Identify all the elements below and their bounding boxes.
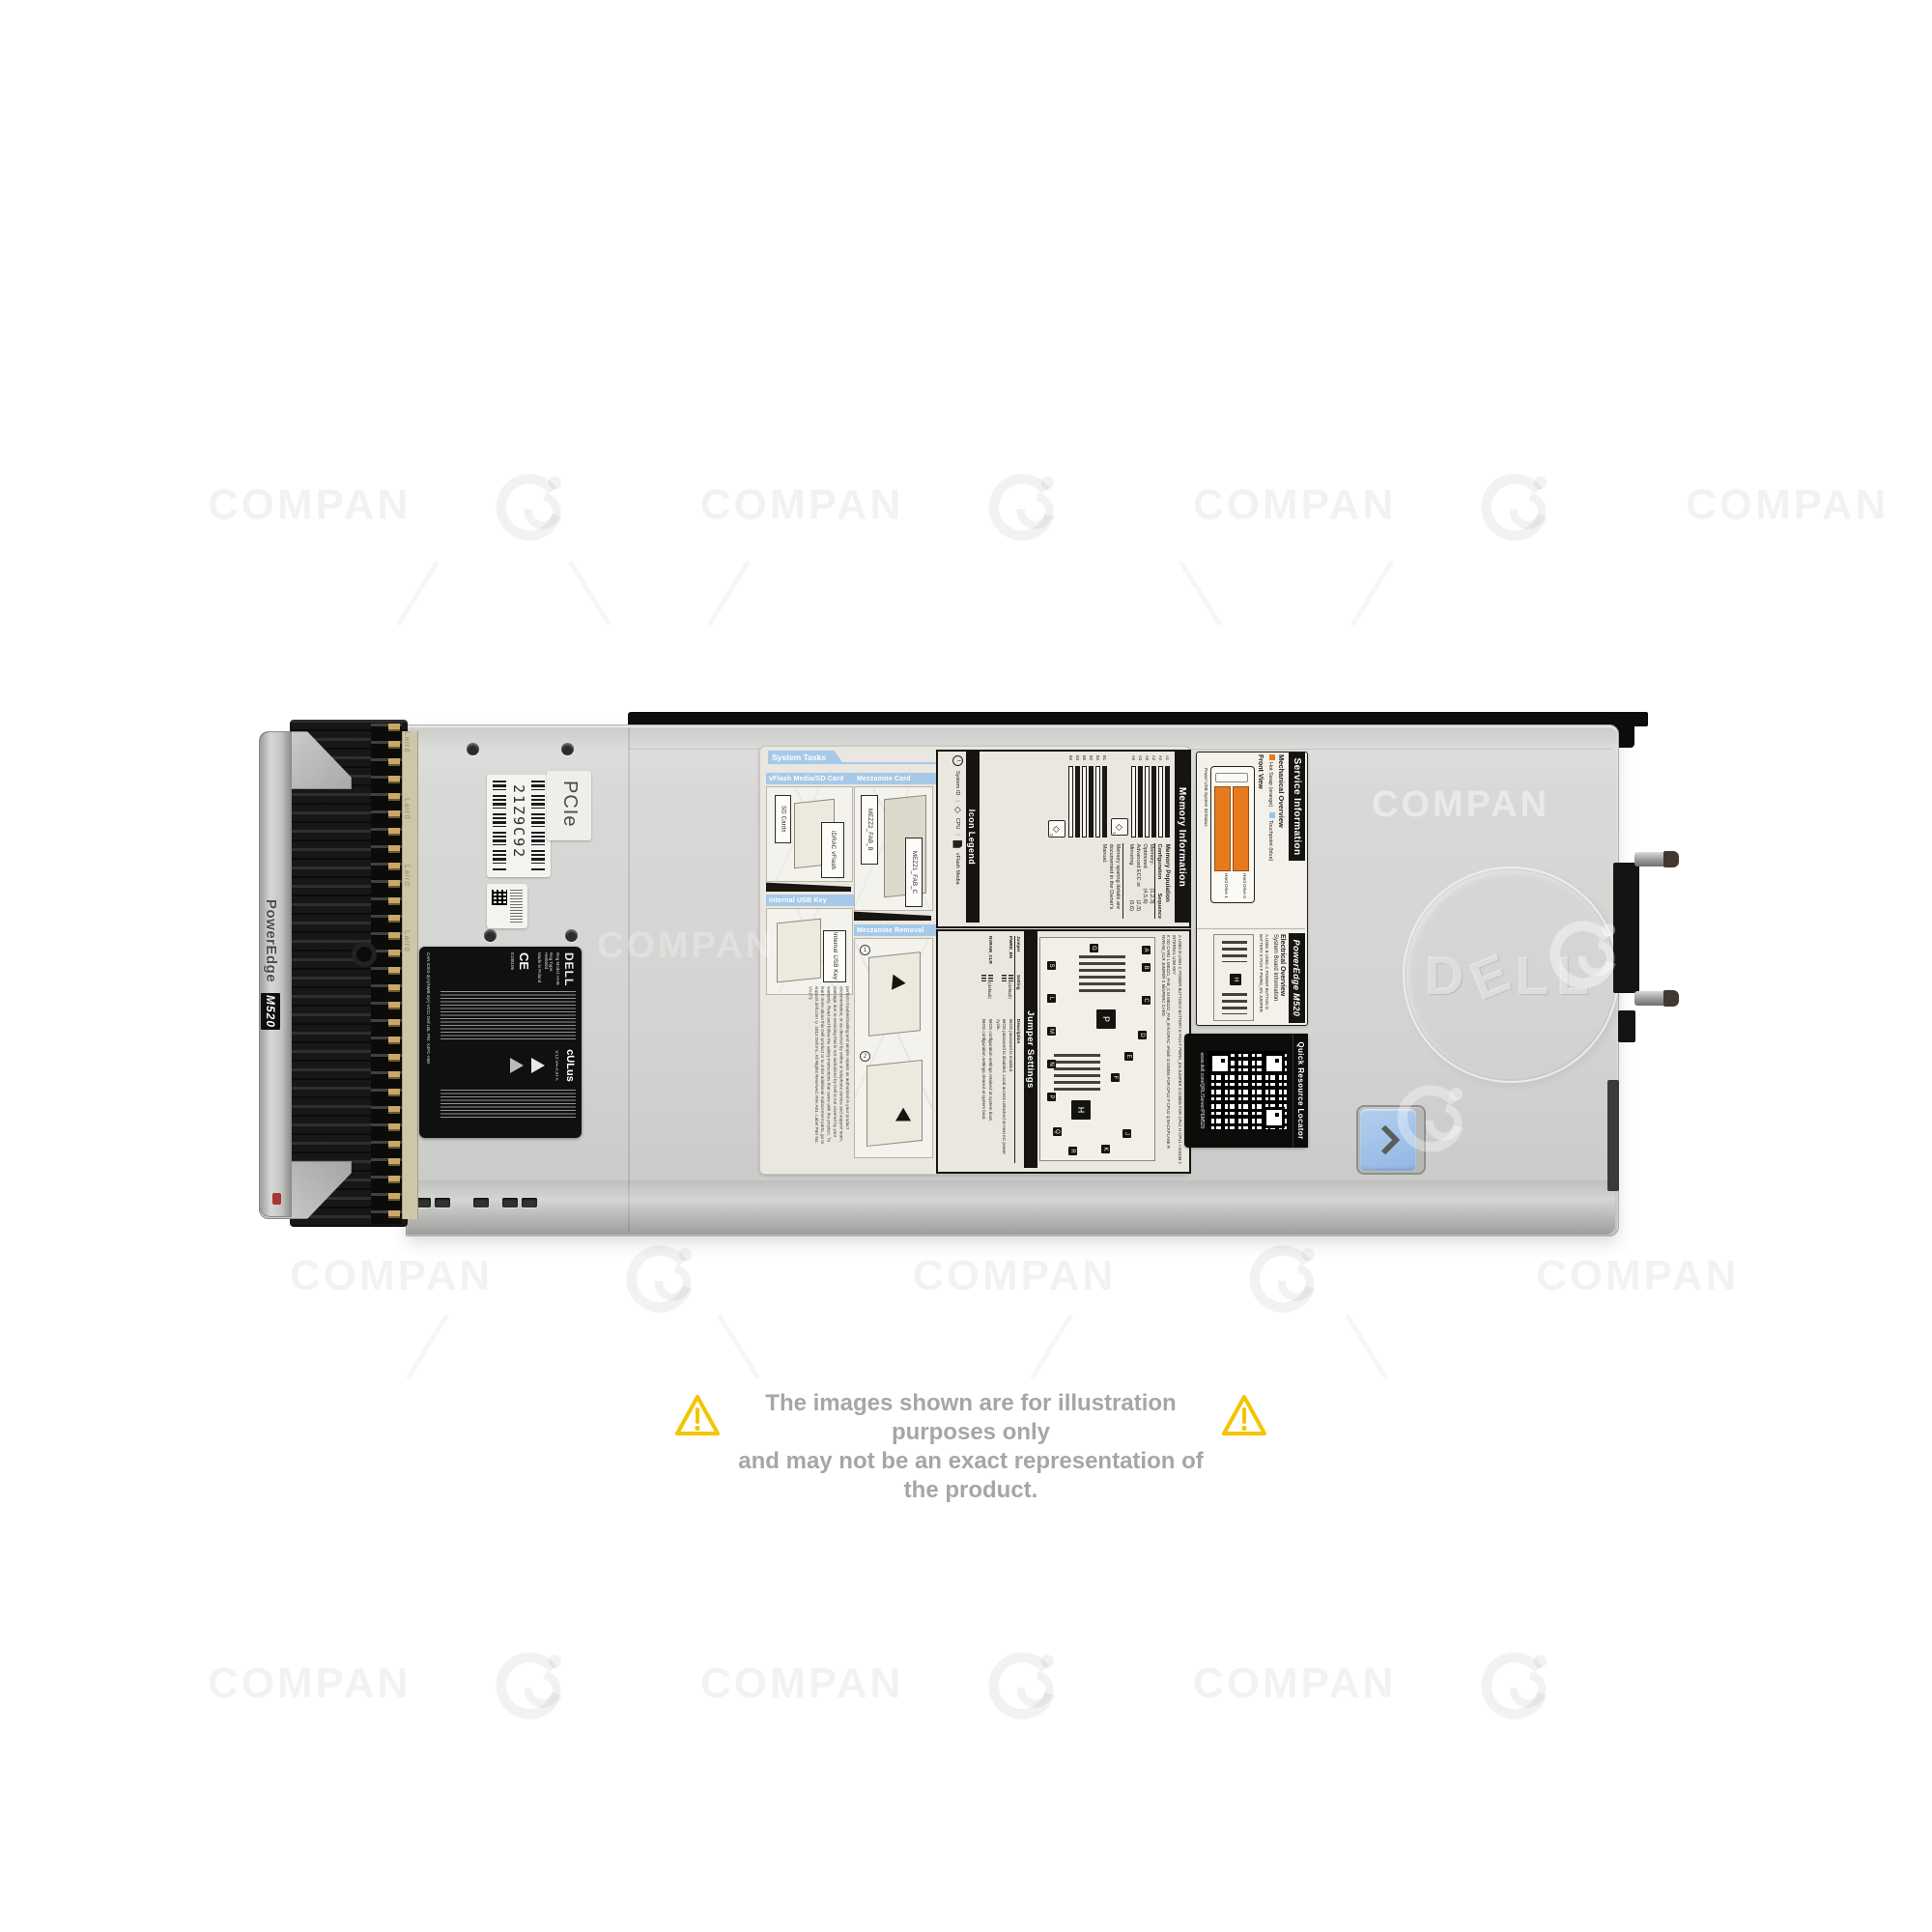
usb-key-diagram: Internal USB Key xyxy=(766,908,853,995)
cpu-icon: ◇ xyxy=(952,807,963,813)
qrl-title: Quick Resource Locator xyxy=(1293,1034,1308,1148)
mezz2-callout: MEZZ2_FAB_B xyxy=(861,795,878,865)
chassis-bottom-rail xyxy=(406,1180,1615,1235)
watermark-logo-icon xyxy=(1473,469,1554,550)
system-board-diagram: P H A B C D E F G J K L M N P xyxy=(1039,937,1155,1161)
release-button[interactable] xyxy=(1356,1105,1426,1175)
watermark-text: COMPAN xyxy=(1536,1252,1739,1300)
watermark-logo-icon xyxy=(488,1647,569,1728)
jumper-settings-box: A USB2 B USB1 C POWER BUTTON D BATTERY E… xyxy=(936,929,1191,1174)
mezz-removal-header: Mezzanine Removal xyxy=(854,924,937,936)
ce-mark: CE xyxy=(517,952,531,985)
service-tag-text: 21Z9C92 xyxy=(510,784,527,871)
usb-key-callout: Internal USB Key xyxy=(823,930,846,982)
icon-legend-title: Icon Legend xyxy=(966,752,979,923)
emi-gasket-strip: LairdLairdLairdLaird xyxy=(402,731,418,1219)
rear-edge-strip xyxy=(1607,1080,1619,1191)
blade-lineart xyxy=(777,919,821,983)
product-photo-canvas: LairdLairdLairdLaird PowerEdge M520 21Z9… xyxy=(0,0,1932,1932)
watermark-text: COMPAN xyxy=(700,1660,903,1708)
electrical-overview: Electrical Overview xyxy=(1279,934,1286,1023)
vent-slot xyxy=(502,1198,518,1207)
cpu-p-marker: P xyxy=(1096,1009,1116,1029)
dimm-slots-graphic xyxy=(1079,955,1125,994)
cpu-label: CPU xyxy=(955,818,961,830)
usb-key-section-header: Internal USB Key xyxy=(766,895,857,906)
chinese-text-columns xyxy=(440,991,576,1041)
system-id-label: System ID xyxy=(955,771,961,795)
poweredge-badge: PowerEdge M520 xyxy=(261,899,288,1044)
qrl-label: Quick Resource Locator www.dell.com/QRL/… xyxy=(1184,1034,1308,1148)
vent-slot xyxy=(522,1198,537,1207)
ports-labels: Power USB System ID/Status xyxy=(1204,768,1208,924)
diagram-wedge xyxy=(854,910,931,921)
gasket-brand-text: LairdLairdLairdLaird xyxy=(403,731,412,1219)
diagram-wedge xyxy=(766,881,851,892)
caution-text-block: Caution: Memory (DIMMs) and CPUs may be … xyxy=(807,986,851,1152)
screw-hole xyxy=(565,929,578,942)
declaration-text-columns xyxy=(440,1090,576,1119)
chassis-seam xyxy=(628,727,630,1232)
control-panel-graphic xyxy=(1215,773,1248,782)
board-legend-row1: A USB2 B USB1 C POWER BUTTON D BATTERY E… xyxy=(1171,935,1182,1164)
pcie-label: PCIe xyxy=(547,771,591,840)
memory-sparing-note: Memory sparing details are documented in… xyxy=(1100,843,1123,919)
midplane-connector-pins xyxy=(371,724,402,1224)
cpu1-diamond-chip: ◇1 xyxy=(1111,818,1128,836)
memory-info-title: Memory Information xyxy=(1175,752,1189,923)
datamatrix-code xyxy=(492,890,507,905)
touchpoint-swatch xyxy=(1269,812,1275,818)
memory-info-box: Icon Legend i System ID | ◇ CPU | vFlash… xyxy=(936,750,1191,928)
guide-pin-top xyxy=(1634,852,1677,867)
service-information-label: Service Information Mechanical Overview … xyxy=(1196,752,1308,1026)
button-face[interactable] xyxy=(1360,1109,1416,1171)
vent-slot xyxy=(473,1198,489,1207)
e-number: E105106 xyxy=(510,952,515,985)
hard-drive-0-bar xyxy=(1233,786,1249,871)
blade-server: LairdLairdLairdLaird PowerEdge M520 21Z9… xyxy=(259,710,1679,1241)
board-information: System Board Information xyxy=(1272,934,1278,1023)
warning-icon xyxy=(1220,1393,1268,1441)
front-view-title: Front View xyxy=(1257,754,1264,924)
rear-small-block xyxy=(1618,1010,1635,1042)
watermark-text: COMPAN xyxy=(1193,481,1396,529)
watermark-text: COMPAN xyxy=(700,481,903,529)
mezzanine-section-header: Mezzanine Card xyxy=(854,773,937,784)
compliance-line: CAN ICES-3(A)/NMB-3(A) VCCI Dell LBL P/N… xyxy=(426,952,431,1136)
vflash-media-icon xyxy=(953,840,963,848)
watermark-text: COMPAN xyxy=(1686,481,1889,529)
warning-triangle-icon xyxy=(531,1058,545,1073)
jumper-settings-title: Jumper Settings xyxy=(1024,931,1037,1168)
rating-text: V:12 V⎓ A:37 A xyxy=(554,1050,559,1080)
removal-lineart xyxy=(868,952,921,1037)
screw-hole xyxy=(467,743,479,755)
cpu-h-marker: H xyxy=(1071,1100,1091,1120)
memory-population-title: Memory Population xyxy=(1164,843,1171,919)
drive1-label: Hard Drive 1 xyxy=(1224,873,1229,898)
qrl-url: www.dell.com/QRL/Server/PEM520 xyxy=(1199,1034,1205,1148)
electrical-legend: A USB2 B USB1 C POWER BUTTON D BATTERY E… xyxy=(1258,934,1269,1021)
system-id-icon: i xyxy=(952,755,963,766)
watermark-text: COMPAN xyxy=(208,481,411,529)
warning-triangle-icon xyxy=(510,1058,524,1073)
vflash-media-label: vFlash Media xyxy=(955,853,961,885)
barcode xyxy=(493,781,506,871)
made-in: Made in Poland xyxy=(537,952,542,985)
drive0-label: Hard Drive 0 xyxy=(1242,873,1247,898)
watermark-text: COMPAN xyxy=(208,1660,411,1708)
barcode xyxy=(531,781,545,871)
dell-embossed-logo: DELL xyxy=(1403,867,1619,1083)
disclaimer-banner: The images shown are for illustration pu… xyxy=(0,1389,1932,1457)
reg-type: Reg Type: HM660d xyxy=(544,952,554,985)
vent-slot xyxy=(435,1198,450,1207)
watermark-logo-icon xyxy=(980,1647,1062,1728)
dell-wordmark: DELL xyxy=(562,952,576,985)
regulatory-label: DELL Reg Model: HHB Reg Type: HM660d Mad… xyxy=(419,947,582,1138)
pcie-text: PCIe xyxy=(558,781,581,835)
release-latch-dot xyxy=(272,1193,281,1205)
tab-rule xyxy=(838,762,950,764)
step-2-marker: 2 xyxy=(860,1051,870,1062)
qr-code xyxy=(1207,1051,1287,1130)
handle-pivot-screw xyxy=(352,942,377,967)
hard-drive-1-bar xyxy=(1214,786,1231,871)
screw-hole xyxy=(484,929,497,942)
mezzanine-diagram: MEZZ2_FAB_B MEZZ1_FAB_C xyxy=(854,786,933,911)
model-chip: M520 xyxy=(261,993,280,1030)
watermark-logo-icon xyxy=(488,469,569,550)
vflash-diagram: SD Cards iDRAC vFlash xyxy=(766,786,853,882)
board-sketch: H xyxy=(1213,934,1254,1021)
sd-cards-callout: SD Cards xyxy=(775,795,791,843)
disclaimer-text: The images shown are for illustration pu… xyxy=(729,1389,1212,1505)
hot-swap-swatch xyxy=(1269,754,1275,760)
caution2-text: Caution: Many repairs may only be done b… xyxy=(827,986,851,1145)
removal-lineart xyxy=(867,1060,923,1147)
mechanical-overview: Mechanical Overview xyxy=(1277,754,1286,924)
mezz1-callout: MEZZ1_FAB_C xyxy=(905,838,923,907)
idrac-vflash-callout: iDRAC vFlash xyxy=(821,822,844,878)
system-tasks-label: System Tasks vFlash Media/SD Card SD Car… xyxy=(759,746,1190,1175)
vflash-section-header: vFlash Media/SD Card xyxy=(766,773,857,784)
watermark-logo-icon xyxy=(1241,1240,1322,1321)
touchpoint-label: Touchpoint (blue) xyxy=(1267,820,1273,861)
dimm-slots-graphic xyxy=(1054,1054,1100,1093)
board-legend-row2: K SD CARD L MEZZ1_FAB_C M MEZZ2_FAB_B N … xyxy=(1160,935,1172,1164)
system-tasks-tab: System Tasks xyxy=(768,751,843,764)
front-view-diagram: Hard Drive 0 Hard Drive 1 xyxy=(1210,766,1255,903)
disclaimer-line1: The images shown are for illustration pu… xyxy=(729,1389,1212,1447)
reg-model: Reg Model: HHB xyxy=(555,952,560,985)
cpu2-diamond-chip: ◇2 xyxy=(1048,820,1065,838)
brand-text: PowerEdge xyxy=(263,899,279,982)
watermark-text: COMPAN xyxy=(1193,1660,1396,1708)
watermark-text: COMPAN xyxy=(913,1252,1116,1300)
screw-hole xyxy=(561,743,574,755)
guide-pin-bottom xyxy=(1634,991,1677,1006)
model-band: PowerEdge M520 xyxy=(1289,933,1305,1023)
rear-connector-block xyxy=(1613,863,1639,993)
service-info-title: Service Information xyxy=(1289,753,1305,861)
chevron-right-icon xyxy=(1370,1124,1400,1154)
watermark-logo-icon xyxy=(1473,1647,1554,1728)
ul-mark: cULus xyxy=(564,1049,576,1082)
disclaimer-line2: and may not be an exact representation o… xyxy=(729,1447,1212,1505)
hot-swap-label: Hot Swap (orange) xyxy=(1267,762,1273,807)
micro-text xyxy=(510,890,523,923)
warning-icon xyxy=(673,1393,722,1441)
watermark-text: COMPAN xyxy=(290,1252,493,1300)
mini-tag-label xyxy=(487,884,527,928)
watermark-logo-icon xyxy=(980,469,1062,550)
step-1-marker: 1 xyxy=(860,945,870,955)
service-tag-label: 21Z9C92 xyxy=(487,775,551,877)
mezz-removal-diagram: 1 2 xyxy=(854,938,933,1158)
watermark-logo-icon xyxy=(618,1240,699,1321)
